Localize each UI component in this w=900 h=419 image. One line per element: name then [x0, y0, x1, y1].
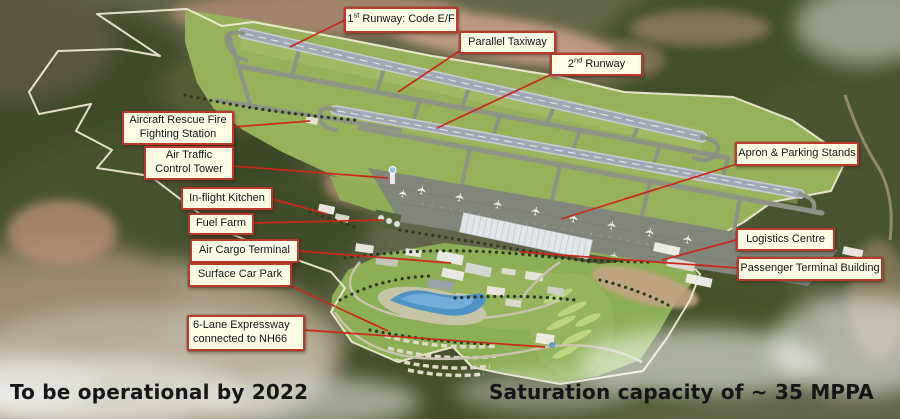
- fuel-farm-label: Fuel Farm: [196, 217, 246, 231]
- callout-expressway: 6-Lane Expressway connected to NH66: [187, 315, 305, 351]
- airport-masterplan-rendering: ✈ ✈ ✈ ✈ ✈ ✈ ✈ ✈ ✈ ✈ ✈ ✈ ✈: [0, 0, 900, 419]
- callout-1st-runway: 1st Runway: Code E/F: [344, 7, 458, 33]
- callout-logistics: Logistics Centre: [736, 228, 835, 251]
- callout-atc-tower: Air Traffic Control Tower: [144, 146, 234, 180]
- expressway-label: 6-Lane Expressway connected to NH66: [193, 319, 299, 347]
- car-park-label: Surface Car Park: [198, 268, 282, 282]
- callout-arff-station: Aircraft Rescue Fire Fighting Station: [122, 111, 234, 145]
- runway1-label: Runway: Code E/F: [359, 13, 454, 25]
- atc-label: Air Traffic Control Tower: [150, 149, 228, 177]
- callout-2nd-runway: 2nd Runway: [550, 53, 643, 76]
- runway2-label: Runway: [582, 58, 625, 70]
- callout-fuel-farm: Fuel Farm: [188, 213, 254, 235]
- air-cargo-label: Air Cargo Terminal: [199, 244, 290, 258]
- callout-car-park: Surface Car Park: [188, 263, 292, 287]
- operational-date-text: To be operational by 2022: [10, 380, 308, 404]
- callout-terminal: Passenger Terminal Building: [737, 257, 883, 281]
- arff-label: Aircraft Rescue Fire Fighting Station: [128, 114, 228, 142]
- apron-label: Apron & Parking Stands: [738, 147, 855, 161]
- parallel-taxiway-label: Parallel Taxiway: [468, 36, 547, 50]
- inflight-kitchen-label: In-flight Kitchen: [189, 192, 265, 206]
- aerial-scene: ✈ ✈ ✈ ✈ ✈ ✈ ✈ ✈ ✈ ✈ ✈ ✈ ✈: [0, 0, 900, 419]
- saturation-capacity-text: Saturation capacity of ~ 35 MPPA: [489, 380, 874, 404]
- atc-tower: [389, 167, 396, 185]
- logistics-label: Logistics Centre: [746, 233, 825, 247]
- callout-apron: Apron & Parking Stands: [735, 142, 859, 166]
- terminal-label: Passenger Terminal Building: [740, 262, 879, 276]
- callout-inflight-kitchen: In-flight Kitchen: [181, 187, 273, 210]
- callout-parallel-taxiway: Parallel Taxiway: [459, 31, 556, 54]
- callout-air-cargo: Air Cargo Terminal: [190, 239, 299, 263]
